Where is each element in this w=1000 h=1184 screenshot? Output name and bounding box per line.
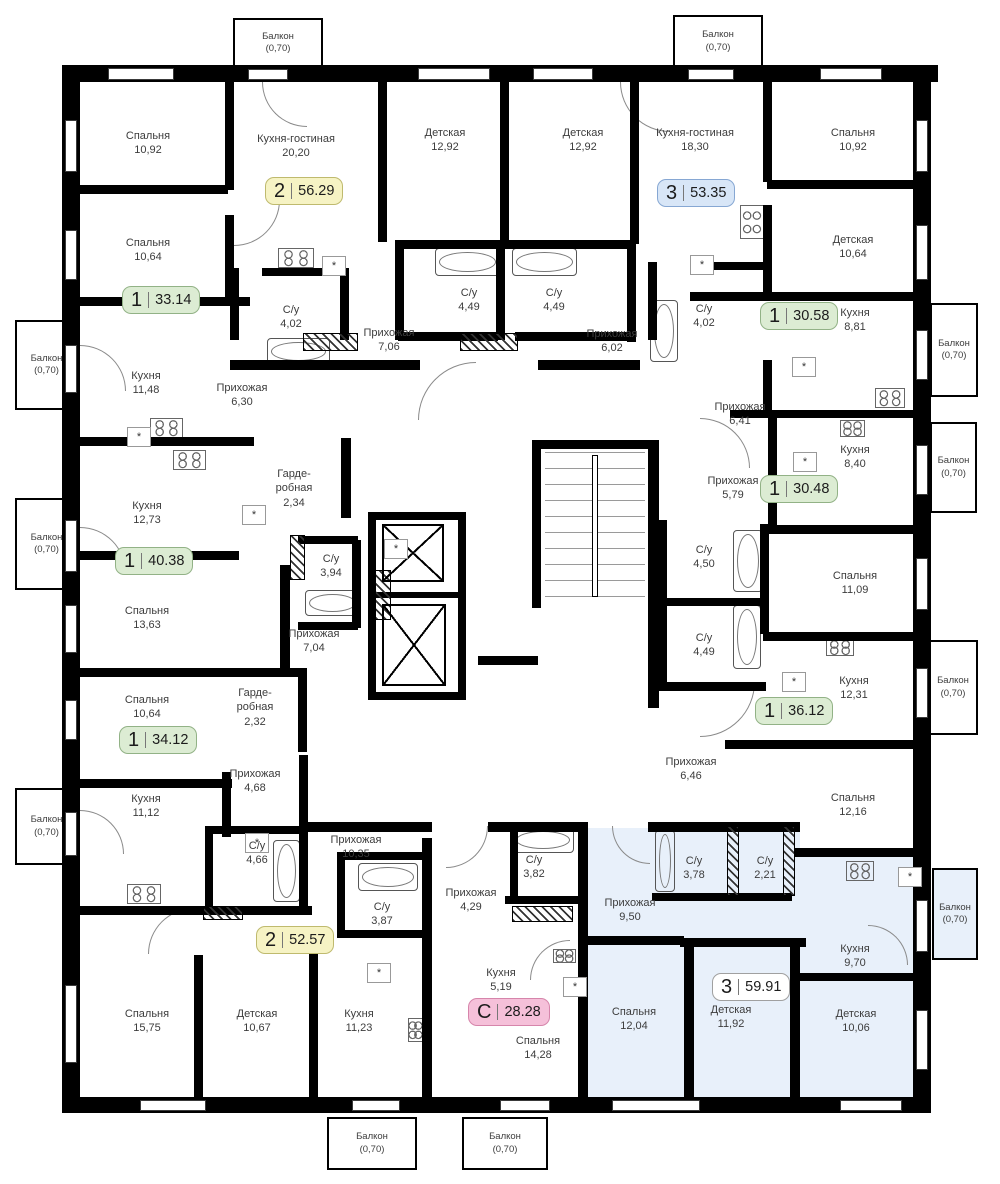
room-label: Прихожая4,68 [195, 767, 315, 796]
room-area: 10,92 [793, 140, 913, 154]
door-arc [262, 82, 307, 127]
room-label: Прихожая6,30 [182, 381, 302, 410]
room-name: Детская [523, 126, 643, 140]
stove-icon [127, 884, 161, 904]
appliance-asterisk-icon: * [367, 963, 391, 983]
room-name: Кухня [441, 966, 561, 980]
wall [763, 205, 772, 295]
badge-rooms-count: 1 [124, 550, 135, 573]
apartment-badge[interactable]: 133.14 [122, 286, 200, 314]
apartment-badge[interactable]: 256.29 [265, 177, 343, 205]
stove-icon [840, 420, 865, 437]
room-name: Гарде- робная [265, 467, 323, 496]
appliance-asterisk-icon: * [792, 357, 816, 377]
badge-rooms-count: С [477, 1001, 491, 1024]
room-name: Спальня [793, 126, 913, 140]
room-area: 6,02 [552, 341, 672, 355]
room-name: С/у [494, 286, 614, 300]
room-name: Кухня [795, 443, 915, 457]
window [612, 1100, 700, 1111]
appliance-asterisk-icon: * [898, 867, 922, 887]
room-label: Прихожая4,29 [411, 886, 531, 915]
room-label: Детская11,92 [671, 1003, 791, 1032]
room-area: 9,70 [795, 956, 915, 970]
room-name: Спальня [88, 236, 208, 250]
wall [395, 240, 404, 340]
room-label: Спальня10,64 [87, 693, 207, 722]
room-label: Спальня10,64 [88, 236, 208, 265]
stair-stringer [592, 455, 598, 597]
room-area: 2,34 [265, 496, 323, 510]
room-area: 20,20 [236, 146, 356, 160]
room-area: 4,49 [494, 300, 614, 314]
balcony-label: Балкон2,34(0,70) [938, 455, 970, 480]
badge-divider [786, 308, 787, 324]
room-name: Гарде- робная [226, 686, 284, 715]
room-area: 10,64 [87, 707, 207, 721]
stove-icon [826, 639, 854, 656]
badge-area: 40.38 [148, 553, 184, 569]
room-area: 4,50 [644, 557, 764, 571]
wall [763, 632, 915, 641]
room-area: 11,09 [795, 583, 915, 597]
room-area: 11,12 [86, 806, 206, 820]
room-name: Кухня [794, 674, 914, 688]
wall [648, 822, 800, 832]
window [916, 668, 928, 718]
balcony: Балкон2,34(0,70) [932, 868, 978, 960]
room-label: Гарде- робная2,32 [226, 686, 284, 729]
badge-rooms-count: 3 [721, 976, 732, 999]
wall [648, 682, 766, 691]
balcony-label: Балкон2,34(0,70) [939, 902, 971, 927]
room-name: Кухня [795, 942, 915, 956]
room-name: Кухня-гостиная [635, 126, 755, 140]
room-name: Прихожая [411, 886, 531, 900]
wall [62, 668, 307, 677]
wall [422, 838, 432, 1097]
room-name: Спальня [87, 604, 207, 618]
window [140, 1100, 206, 1111]
balcony: Балкон2,34(0,70) [462, 1117, 548, 1170]
window [916, 1010, 928, 1070]
badge-rooms-count: 2 [265, 929, 276, 952]
badge-rooms-count: 1 [131, 289, 142, 312]
room-label: Кухня11,12 [86, 792, 206, 821]
door-arc [418, 362, 476, 420]
badge-divider [141, 553, 142, 569]
room-label: Кухня5,19 [441, 966, 561, 995]
room-name: Детская [671, 1003, 791, 1017]
apartment-badge[interactable]: 353.35 [657, 179, 735, 207]
room-label: Кухня8,40 [795, 443, 915, 472]
room-name: Спальня [793, 791, 913, 805]
room-name: С/у [705, 854, 825, 868]
balcony-label: Балкон2,34(0,70) [31, 532, 63, 557]
room-name: Кухня [299, 1007, 419, 1021]
window [916, 900, 928, 952]
apartment-badge[interactable]: 359.91 [712, 973, 790, 1001]
room-label: Детская10,64 [793, 233, 913, 262]
wall [532, 440, 652, 449]
room-name: Спальня [87, 1007, 207, 1021]
stove-icon [173, 450, 206, 470]
bathtub-icon [435, 248, 500, 276]
room-label: С/у4,50 [644, 543, 764, 572]
wall [368, 512, 466, 520]
room-label: Кухня12,73 [87, 499, 207, 528]
badge-rooms-count: 1 [769, 305, 780, 328]
room-label: Прихожая6,46 [631, 755, 751, 784]
shaft-hatch [203, 906, 243, 920]
room-label: Спальня11,09 [795, 569, 915, 598]
balcony-label: Балкон2,34(0,70) [702, 29, 734, 54]
room-label: Детская12,92 [385, 126, 505, 155]
room-label: Детская10,06 [796, 1007, 916, 1036]
window [916, 225, 928, 280]
room-name: Прихожая [631, 755, 751, 769]
wall [500, 82, 509, 244]
window [65, 120, 77, 172]
window [65, 700, 77, 740]
wall [225, 82, 234, 190]
room-label: Кухня11,23 [299, 1007, 419, 1036]
stove-icon [278, 248, 314, 268]
wall [62, 185, 228, 194]
balcony-label: Балкон2,34(0,70) [356, 1131, 388, 1156]
stove-icon [846, 861, 874, 881]
room-label: Спальня10,92 [793, 126, 913, 155]
window [533, 68, 593, 80]
window [65, 605, 77, 653]
badge-rooms-count: 3 [666, 182, 677, 205]
bathtub-icon [512, 248, 577, 276]
badge-divider [282, 932, 283, 948]
badge-area: 52.57 [289, 932, 325, 948]
room-area: 6,41 [680, 414, 800, 428]
elevator-icon [382, 604, 446, 686]
apartment-badge[interactable]: 130.58 [760, 302, 838, 330]
room-area: 6,46 [631, 769, 751, 783]
room-area: 5,19 [441, 980, 561, 994]
window [688, 69, 734, 80]
wall [630, 82, 639, 244]
room-name: Прихожая [182, 381, 302, 395]
room-area: 15,75 [87, 1021, 207, 1035]
appliance-asterisk-icon: * [127, 427, 151, 447]
balcony-label: Балкон2,34(0,70) [262, 31, 294, 56]
room-area: 12,92 [385, 140, 505, 154]
room-label: Кухня9,70 [795, 942, 915, 971]
appliance-asterisk-icon: * [690, 255, 714, 275]
room-area: 7,04 [254, 641, 374, 655]
apartment-badge[interactable]: 136.12 [755, 697, 833, 725]
room-area: 10,92 [88, 143, 208, 157]
window [65, 345, 77, 393]
balcony: Балкон2,34(0,70) [930, 303, 978, 397]
room-label: С/у4,49 [494, 286, 614, 315]
badge-divider [738, 979, 739, 995]
badge-divider [148, 292, 149, 308]
wall [532, 440, 541, 608]
room-name: С/у [644, 302, 764, 316]
window [840, 1100, 902, 1111]
room-name: Спальня [87, 693, 207, 707]
room-name: Детская [793, 233, 913, 247]
window [500, 1100, 550, 1111]
badge-divider [497, 1004, 498, 1020]
badge-area: 59.91 [745, 979, 781, 995]
balcony: Балкон2,34(0,70) [673, 15, 763, 68]
room-name: Прихожая [195, 767, 315, 781]
badge-area: 53.35 [690, 185, 726, 201]
room-area: 10,64 [88, 250, 208, 264]
balcony-label: Балкон2,34(0,70) [937, 675, 969, 700]
badge-rooms-count: 1 [128, 729, 139, 752]
window [65, 985, 77, 1063]
room-label: С/у2,21 [705, 854, 825, 883]
room-name: С/у [231, 303, 351, 317]
room-area: 2,32 [226, 715, 284, 729]
wall [298, 536, 358, 544]
apartment-badge[interactable]: 130.48 [760, 475, 838, 503]
room-name: С/у [644, 631, 764, 645]
balcony: Балкон2,34(0,70) [928, 640, 978, 735]
room-label: С/у3,82 [474, 853, 594, 882]
room-name: С/у [271, 552, 391, 566]
room-label: С/у3,94 [271, 552, 391, 581]
room-name: Прихожая [329, 326, 449, 340]
room-area: 2,21 [705, 868, 825, 882]
badge-divider [781, 703, 782, 719]
room-label: Прихожая6,41 [680, 400, 800, 429]
shaft-hatch [460, 333, 518, 351]
window [916, 120, 928, 172]
room-name: Прихожая [570, 896, 690, 910]
badge-rooms-count: 2 [274, 180, 285, 203]
room-name: Детская [385, 126, 505, 140]
wall [478, 656, 538, 665]
window [418, 68, 490, 80]
room-area: 13,63 [87, 618, 207, 632]
room-name: Спальня [88, 129, 208, 143]
room-label: Детская12,92 [523, 126, 643, 155]
room-area: 4,68 [195, 781, 315, 795]
room-name: Кухня [86, 792, 206, 806]
wall [395, 240, 635, 249]
appliance-asterisk-icon: * [563, 977, 587, 997]
wall [230, 360, 420, 370]
balcony: Балкон2,34(0,70) [930, 422, 977, 513]
wall [337, 930, 427, 938]
window [65, 520, 77, 572]
room-area: 4,49 [644, 645, 764, 659]
window [916, 330, 928, 380]
room-area: 12,73 [87, 513, 207, 527]
badge-area: 36.12 [788, 703, 824, 719]
balcony: Балкон2,34(0,70) [327, 1117, 417, 1170]
wall [458, 512, 466, 700]
stove-icon [150, 418, 183, 438]
apartment-badge[interactable]: С28.28 [468, 998, 550, 1026]
badge-rooms-count: 1 [769, 478, 780, 501]
wall [341, 438, 351, 518]
room-area: 7,06 [329, 340, 449, 354]
badge-area: 30.58 [793, 308, 829, 324]
wall [298, 672, 307, 752]
wall [690, 292, 915, 301]
badge-divider [683, 185, 684, 201]
wall [62, 906, 312, 915]
window [65, 812, 77, 856]
room-name: Прихожая [680, 400, 800, 414]
door-arc [620, 82, 670, 132]
room-name: Прихожая [254, 627, 374, 641]
balcony-label: Балкон2,34(0,70) [31, 353, 63, 378]
room-area: 3,94 [271, 566, 391, 580]
badge-area: 30.48 [793, 481, 829, 497]
wall [725, 740, 915, 749]
door-arc [234, 200, 280, 246]
wall [767, 180, 915, 189]
room-name: С/у [474, 853, 594, 867]
window [352, 1100, 400, 1111]
window [248, 69, 288, 80]
room-area: 12,92 [523, 140, 643, 154]
balcony-label: Балкон2,34(0,70) [31, 814, 63, 839]
room-label: Кухня-гостиная20,20 [236, 132, 356, 161]
room-name: С/у [644, 543, 764, 557]
room-area: 11,92 [671, 1017, 791, 1031]
room-area: 3,87 [322, 914, 442, 928]
window [820, 68, 882, 80]
appliance-asterisk-icon: * [322, 256, 346, 276]
room-label: Прихожая9,50 [570, 896, 690, 925]
room-area: 4,29 [411, 900, 531, 914]
wall [588, 936, 684, 945]
wall [538, 360, 640, 370]
wall [299, 822, 432, 832]
apartment-badge[interactable]: 134.12 [119, 726, 197, 754]
room-label: Спальня10,92 [88, 129, 208, 158]
room-name: Прихожая [296, 833, 416, 847]
wall [488, 822, 580, 832]
room-label: Спальня14,28 [478, 1034, 598, 1063]
room-name: Спальня [795, 569, 915, 583]
window [916, 558, 928, 610]
badge-divider [145, 732, 146, 748]
room-area: 8,40 [795, 457, 915, 471]
badge-area: 33.14 [155, 292, 191, 308]
wall [62, 65, 938, 82]
room-name: Кухня-гостиная [236, 132, 356, 146]
room-area: 18,30 [635, 140, 755, 154]
room-label: Прихожая6,02 [552, 327, 672, 356]
badge-divider [291, 183, 292, 199]
window [916, 445, 928, 495]
room-label: Спальня15,75 [87, 1007, 207, 1036]
room-label: Прихожая7,04 [254, 627, 374, 656]
stove-icon [875, 388, 905, 408]
stove-icon [740, 205, 764, 239]
room-label: Прихожая10,35 [296, 833, 416, 862]
wall [763, 525, 915, 534]
room-area: 11,23 [299, 1021, 419, 1035]
wall [368, 692, 466, 700]
room-area: 10,35 [296, 847, 416, 861]
room-label: Спальня12,16 [793, 791, 913, 820]
room-name: Детская [796, 1007, 916, 1021]
badge-divider [786, 481, 787, 497]
appliance-asterisk-icon: * [242, 505, 266, 525]
room-area: 6,30 [182, 395, 302, 409]
balcony: Балкон2,34(0,70) [233, 18, 323, 68]
room-label: Спальня13,63 [87, 604, 207, 633]
room-name: Прихожая [552, 327, 672, 341]
floor-plan: ************ Балкон2,34(0,70)Балкон2,34(… [0, 0, 1000, 1184]
badge-area: 56.29 [298, 183, 334, 199]
room-name: Кухня [87, 499, 207, 513]
room-area: 10,06 [796, 1021, 916, 1035]
bathtub-icon [358, 863, 418, 891]
room-label: Прихожая7,06 [329, 326, 449, 355]
apartment-badge[interactable]: 252.57 [256, 926, 334, 954]
room-label: Кухня-гостиная18,30 [635, 126, 755, 155]
balcony-label: Балкон2,34(0,70) [489, 1131, 521, 1156]
room-area: 3,82 [474, 867, 594, 881]
badge-area: 28.28 [504, 1004, 540, 1020]
room-name: Спальня [478, 1034, 598, 1048]
window [108, 68, 174, 80]
wall [648, 440, 659, 708]
wall [62, 437, 254, 446]
room-area: 9,50 [570, 910, 690, 924]
window [65, 230, 77, 280]
room-label: С/у4,49 [644, 631, 764, 660]
room-label: Гарде- робная2,34 [265, 467, 323, 510]
wall [763, 82, 772, 182]
badge-area: 34.12 [152, 732, 188, 748]
room-area: 14,28 [478, 1048, 598, 1062]
room-area: 10,64 [793, 247, 913, 261]
badge-rooms-count: 1 [764, 700, 775, 723]
wall [760, 524, 769, 634]
apartment-badge[interactable]: 140.38 [115, 547, 193, 575]
wall [62, 65, 80, 1113]
wall [655, 598, 763, 606]
balcony-label: Балкон2,34(0,70) [938, 338, 970, 363]
wall [680, 938, 806, 947]
wall [800, 973, 913, 981]
room-area: 12,16 [793, 805, 913, 819]
wall [378, 82, 387, 242]
